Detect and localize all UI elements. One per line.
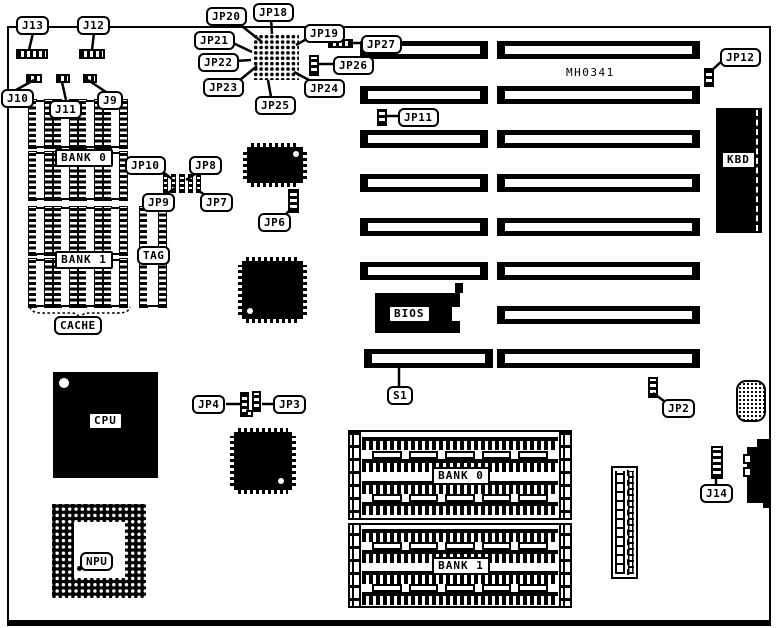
callout-jp12: JP12 <box>720 48 761 67</box>
callout-j13: J13 <box>16 16 49 35</box>
callout-jp22: JP22 <box>198 53 239 72</box>
callout-j14: J14 <box>700 484 733 503</box>
kbd-label: KBD <box>721 151 756 169</box>
callout-jp11: JP11 <box>398 108 439 127</box>
callout-jp2: JP2 <box>662 399 695 418</box>
callout-jp8: JP8 <box>189 156 222 175</box>
callout-jp4: JP4 <box>192 395 225 414</box>
cpu-label: CPU <box>89 413 122 429</box>
callout-jp3: JP3 <box>273 395 306 414</box>
callout-jp24: JP24 <box>304 79 345 98</box>
callout-j9: J9 <box>97 91 123 110</box>
callout-jp20: JP20 <box>206 7 247 26</box>
simm-bank1-label: BANK 1 <box>432 557 490 575</box>
cache-bank0-label: BANK 0 <box>55 149 113 167</box>
callout-jp23: JP23 <box>203 78 244 97</box>
callout-jp19: JP19 <box>304 24 345 43</box>
callout-jp25: JP25 <box>255 96 296 115</box>
callout-j10: J10 <box>1 89 34 108</box>
callout-jp6: JP6 <box>258 213 291 232</box>
callout-jp26: JP26 <box>333 56 374 75</box>
bios-label: BIOS <box>389 306 430 322</box>
tag-label: TAG <box>137 246 170 265</box>
simm-bank0-label: BANK 0 <box>432 467 490 485</box>
callout-s1: S1 <box>387 386 413 405</box>
npu-label: NPU <box>80 552 113 571</box>
callout-j12: J12 <box>77 16 110 35</box>
callout-jp18: JP18 <box>253 3 294 22</box>
cache-bank1-label: BANK 1 <box>55 251 113 269</box>
callout-jp27: JP27 <box>361 35 402 54</box>
callout-j11: J11 <box>49 100 82 119</box>
callout-jp10: JP10 <box>125 156 166 175</box>
callout-jp7: JP7 <box>200 193 233 212</box>
callout-jp9: JP9 <box>142 193 175 212</box>
motherboard-diagram: MH0341 BANK 0 BANK 1 BANK 0 BANK 1 BIOS … <box>0 0 778 628</box>
cache-label: CACHE <box>54 316 102 335</box>
callout-jp21: JP21 <box>194 31 235 50</box>
